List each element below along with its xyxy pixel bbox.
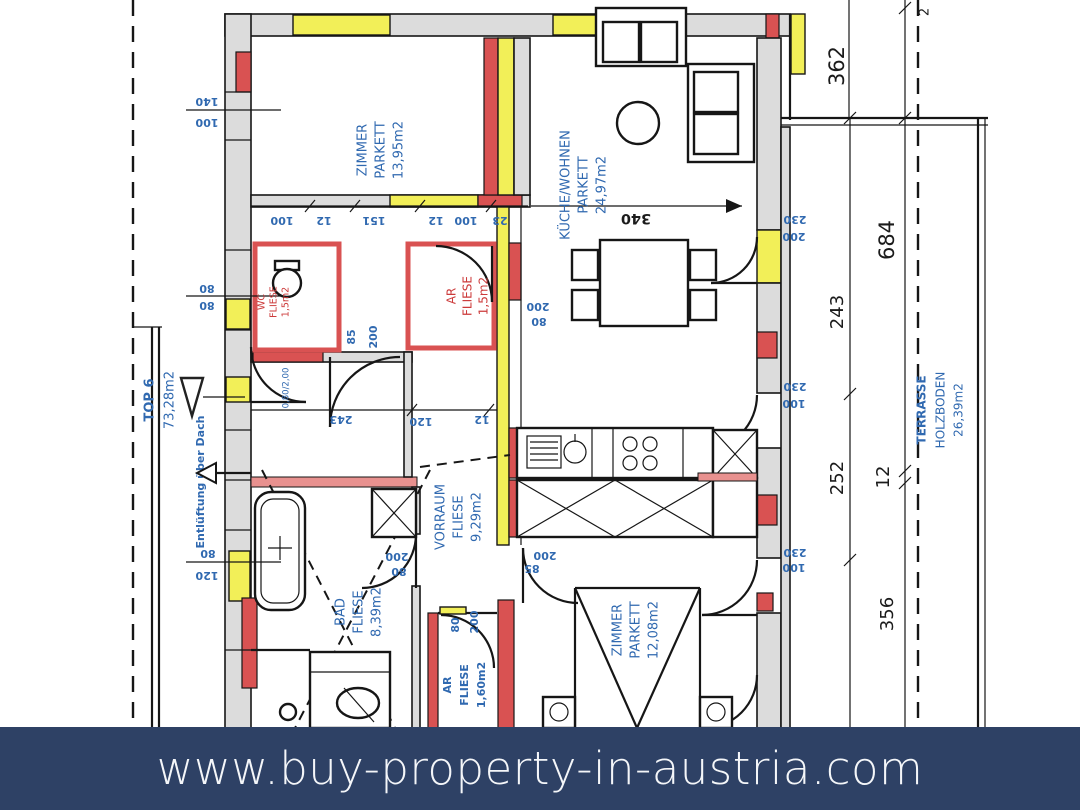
room-bad-floor: FLIESE: [352, 590, 367, 633]
dim-wc-door-0: 85: [345, 329, 358, 344]
room-zimmer-top-name: ZIMMER: [356, 124, 371, 176]
dim-ar-bottom-door-1: 200: [468, 610, 481, 633]
terrace-door-panel: [757, 230, 781, 283]
nightstand-right: [700, 697, 732, 728]
dim-bad-door-1: 80: [391, 565, 407, 578]
dim-kueche-door-1: 85: [524, 562, 539, 575]
room-vorraum-area: 9,29m2: [470, 492, 485, 542]
dim-340: 340: [621, 210, 651, 226]
room-kueche-name: KÜCHE/WOHNEN: [557, 130, 574, 240]
bathtub: [255, 492, 305, 610]
room-bad-name: BAD: [334, 598, 349, 626]
room-ar-bottom-floor: FLIESE: [458, 664, 471, 706]
vent-note: Entlüftung über Dach: [194, 416, 207, 549]
dim-chain-4: 100: [454, 214, 477, 227]
room-kueche-area: 24,97m2: [595, 156, 610, 214]
dim-243: 243: [827, 295, 848, 329]
dim-left-80a: 80: [199, 282, 215, 295]
room-ar-top-name: AR: [445, 288, 459, 305]
room-terrasse-area: 26,39m2: [952, 383, 966, 437]
interior-walls: [251, 38, 530, 728]
room-labels: ZIMMER PARKETT 13,95m2 KÜCHE/WOHNEN PARK…: [257, 121, 966, 708]
window-top-left: [293, 15, 390, 35]
dim-chain-2: 151: [363, 214, 386, 227]
room-wc-name: WC: [257, 294, 268, 310]
window-left-2: [229, 551, 250, 601]
dining-set: [572, 240, 716, 326]
dim-right-door-low-0: 230: [783, 546, 806, 559]
dim-ar-top-door-0: 200: [526, 300, 549, 313]
window-left-1: [226, 299, 250, 329]
room-wc-floor: FLIESE: [269, 286, 280, 318]
floorplan-drawing: 362 684 243 252 12 356 2 340 100 12 151 …: [0, 0, 1080, 810]
dim-356: 356: [877, 597, 898, 631]
dim-12: 12: [873, 466, 894, 489]
terrace-door-arc: [711, 237, 757, 283]
dim-right-door-mid-1: 100: [782, 397, 805, 410]
dim-right-door-low-1: 100: [782, 561, 805, 574]
room-vorraum-name: VORRAUM: [434, 484, 449, 550]
room-kueche-floor: PARKETT: [577, 156, 592, 213]
room-terrasse-floor: HOLZBODEN: [934, 372, 948, 449]
dim-chain-5: 23: [492, 214, 507, 227]
vanity-washbasin: [280, 652, 390, 728]
dim-ar-top-door-1: 80: [531, 315, 547, 328]
dimension-lines: [186, 0, 911, 728]
dim-ar-bottom-door-0: 80: [449, 617, 462, 633]
room-ar-top-area: 1,5m2: [477, 277, 491, 315]
dim-362: 362: [825, 46, 849, 86]
dim-684: 684: [875, 220, 899, 260]
floor-drain: [280, 704, 296, 720]
dim-chain-1: 12: [316, 214, 331, 227]
entrance-door-panel: [226, 377, 250, 402]
dim-terrace-door-0: 230: [783, 213, 806, 226]
room-zimmer-bottom-floor: PARKETT: [629, 601, 644, 658]
unit-marker-triangle: [181, 378, 203, 416]
coffee-table: [617, 102, 659, 144]
room-zimmer-bottom-name: ZIMMER: [611, 604, 626, 656]
nightstand-left: [543, 697, 575, 728]
dim-right-door-mid-0: 230: [783, 380, 806, 393]
room-terrasse-name: TERRASSE: [915, 375, 929, 444]
website-banner: www.buy-property-in-austria.com: [0, 727, 1080, 810]
unit-name: TOP 6: [143, 378, 158, 421]
kitchen-counter: [517, 428, 713, 478]
dim-bad-door-0: 200: [385, 550, 408, 563]
dim-row-mid-2: 12: [474, 413, 489, 426]
dim-row-mid-1: 120: [409, 415, 432, 428]
website-url: www.buy-property-in-austria.com: [157, 742, 924, 795]
floorplan-page: 362 684 243 252 12 356 2 340 100 12 151 …: [0, 0, 1080, 810]
dim-terrace-door-1: 200: [782, 230, 805, 243]
dim-252: 252: [827, 461, 848, 495]
room-zimmer-top-area: 13,95m2: [392, 121, 407, 179]
dim-chain-3: 12: [428, 214, 443, 227]
wall-bad-vorraum: [251, 477, 417, 487]
room-zimmer-top-floor: PARKETT: [374, 121, 389, 178]
site-boundary-lines: [133, 0, 162, 728]
dim-kueche-door-0: 200: [533, 549, 556, 562]
room-zimmer-bottom-area: 12,08m2: [647, 601, 662, 659]
right-wall: [757, 38, 781, 728]
dim-left-100: 100: [195, 116, 218, 129]
room-ar-bottom-name: AR: [441, 676, 454, 694]
dim-left-140: 140: [195, 95, 218, 108]
dim-row-mid-0: 243: [330, 413, 353, 426]
dim-left-120: 120: [195, 569, 218, 582]
dim-chain-0: 100: [270, 214, 293, 227]
dim-arrow: [726, 199, 742, 213]
bath-cabinet: [372, 489, 416, 537]
right-door-low-arc: [702, 560, 757, 615]
room-vorraum-floor: FLIESE: [452, 495, 467, 538]
dim-2: 2: [918, 8, 933, 16]
dim-wc-door-1: 200: [367, 325, 380, 348]
room-wc-area: 1,5m2: [281, 287, 292, 317]
room-ar-top-floor: FLIESE: [461, 276, 475, 316]
room-ar-bottom-area: 1,60m2: [475, 662, 488, 708]
room-bad-area: 8,39m2: [370, 587, 385, 637]
unit-area: 73,28m2: [163, 371, 178, 429]
dim-left-80b: 80: [199, 299, 215, 312]
dim-entrance-size: 0,80/2,00: [282, 368, 292, 409]
